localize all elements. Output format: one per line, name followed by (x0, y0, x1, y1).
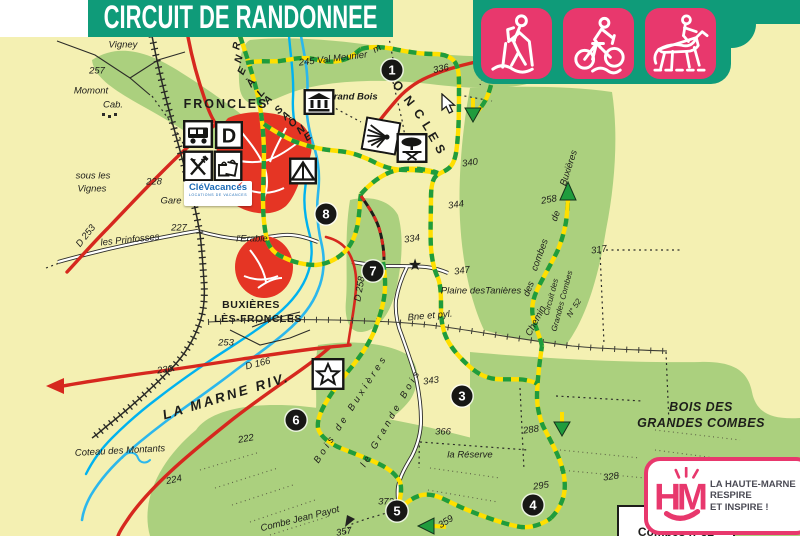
title-banner: CIRCUIT DE RANDONNEE (88, 0, 393, 37)
clevacances-logo: CléVacances LOCATIONS DE VACANCES ✔ (184, 181, 252, 206)
horse-riding-tile[interactable] (645, 8, 716, 79)
hiker-icon (481, 8, 552, 79)
page-margin (0, 0, 89, 37)
mountain-biker-icon (563, 8, 634, 79)
clevacances-subtext: LOCATIONS DE VACANCES (184, 193, 252, 197)
page-title: CIRCUIT DE RANDONNEE (104, 0, 378, 37)
hm-line3: ET INSPIRE ! (710, 502, 796, 513)
horse-rider-icon (645, 8, 716, 79)
haute-marne-logo: HM LA HAUTE-MARNE RESPIRE ET INSPIRE ! (644, 457, 800, 535)
hm-line2: RESPIRE (710, 490, 796, 501)
mountain-biking-tile[interactable] (563, 8, 634, 79)
clevacances-tick-icon: ✔ (238, 181, 243, 188)
hm-monogram-icon: HM (652, 467, 710, 525)
mouse-cursor-icon (441, 93, 457, 115)
map-viewer[interactable]: Vigney257MomontCab.sous lesVignes228D 25… (0, 0, 800, 536)
hiking-tile[interactable] (481, 8, 552, 79)
buxieres-urban-area (235, 236, 293, 298)
hm-line1: LA HAUTE-MARNE (710, 479, 796, 490)
